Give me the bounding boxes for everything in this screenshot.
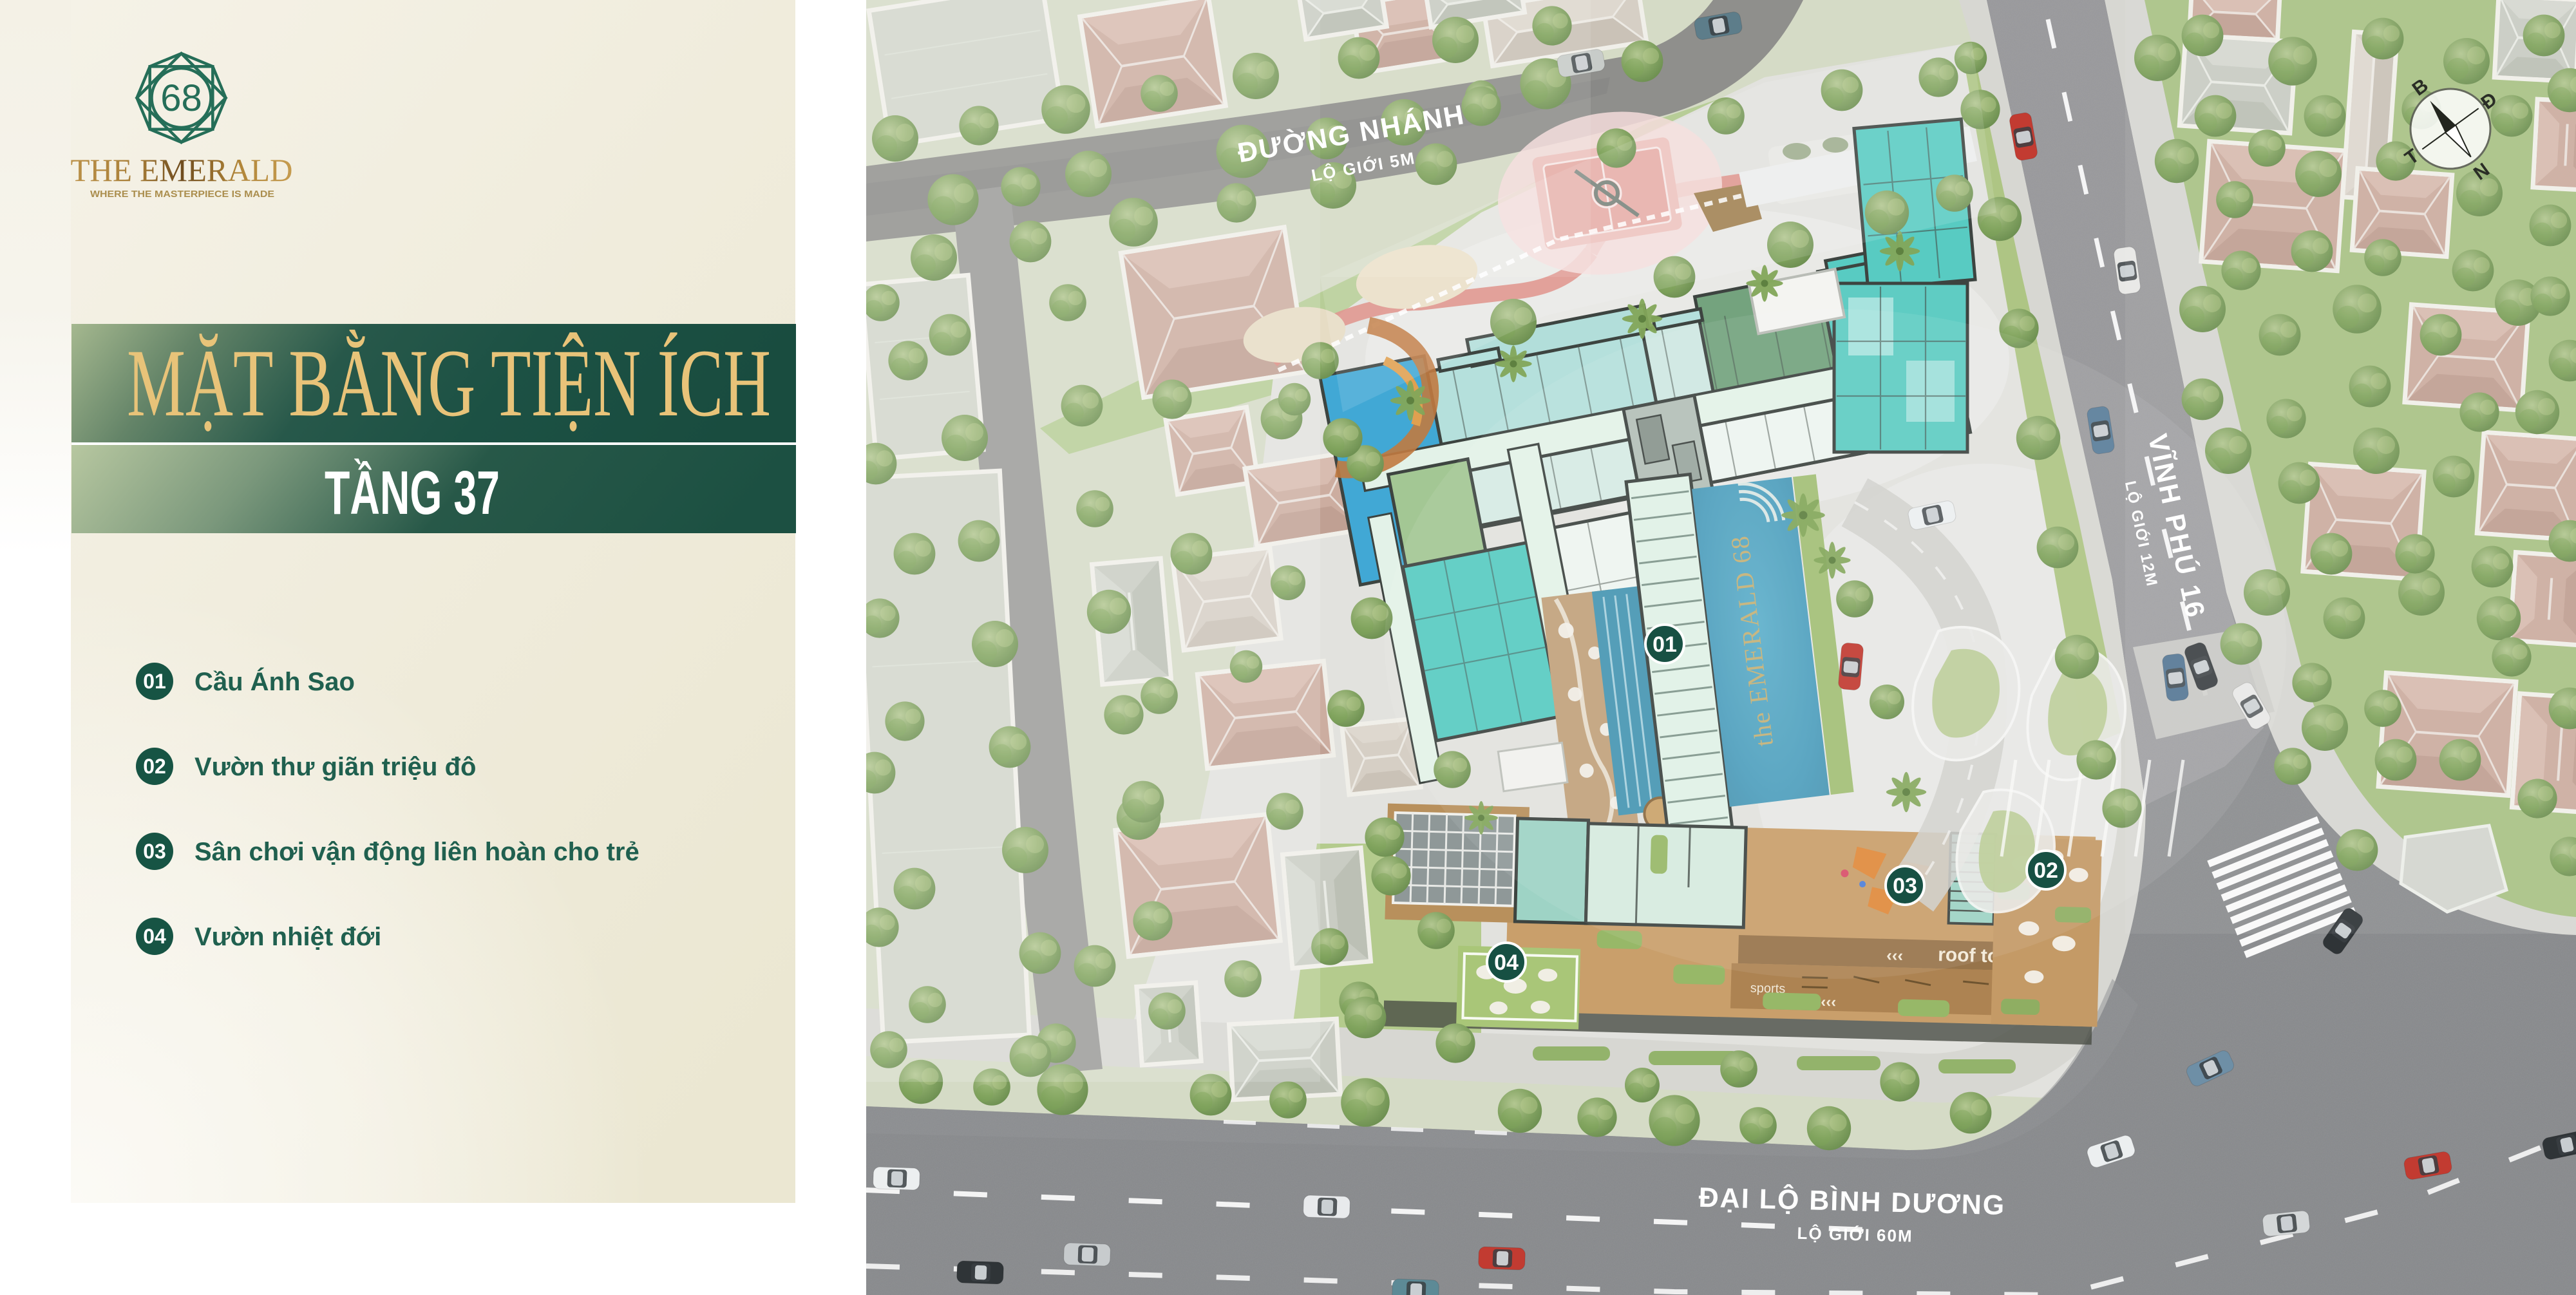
svg-text:04: 04 [143, 925, 166, 948]
svg-text:LỘ GIỚI 60M: LỘ GIỚI 60M [1797, 1224, 1913, 1246]
svg-text:TẦNG 37: TẦNG 37 [325, 458, 500, 527]
svg-text:Vườn thư giãn triệu đô: Vườn thư giãn triệu đô [194, 753, 476, 781]
svg-text:02: 02 [143, 755, 166, 778]
svg-text:01: 01 [143, 670, 166, 693]
svg-text:03: 03 [1893, 874, 1917, 898]
svg-text:68: 68 [160, 77, 202, 119]
svg-text:Sân chơi vận động liên hoàn ch: Sân chơi vận động liên hoàn cho trẻ [194, 838, 639, 866]
svg-text:04: 04 [1494, 950, 1519, 975]
svg-text:Cầu Ánh Sao: Cầu Ánh Sao [194, 667, 355, 696]
svg-text:01: 01 [1653, 632, 1677, 657]
svg-text:Vườn nhiệt đới: Vườn nhiệt đới [194, 923, 381, 951]
svg-text:THE EMERALD: THE EMERALD [71, 152, 293, 188]
svg-text:02: 02 [2034, 858, 2058, 883]
svg-text:03: 03 [143, 840, 166, 863]
svg-text:WHERE THE MASTERPIECE IS MADE: WHERE THE MASTERPIECE IS MADE [90, 189, 274, 200]
svg-text:MẶT BẰNG TIỆN ÍCH: MẶT BẰNG TIỆN ÍCH [127, 329, 771, 437]
svg-text:‹‹‹: ‹‹‹ [1821, 993, 1837, 1011]
